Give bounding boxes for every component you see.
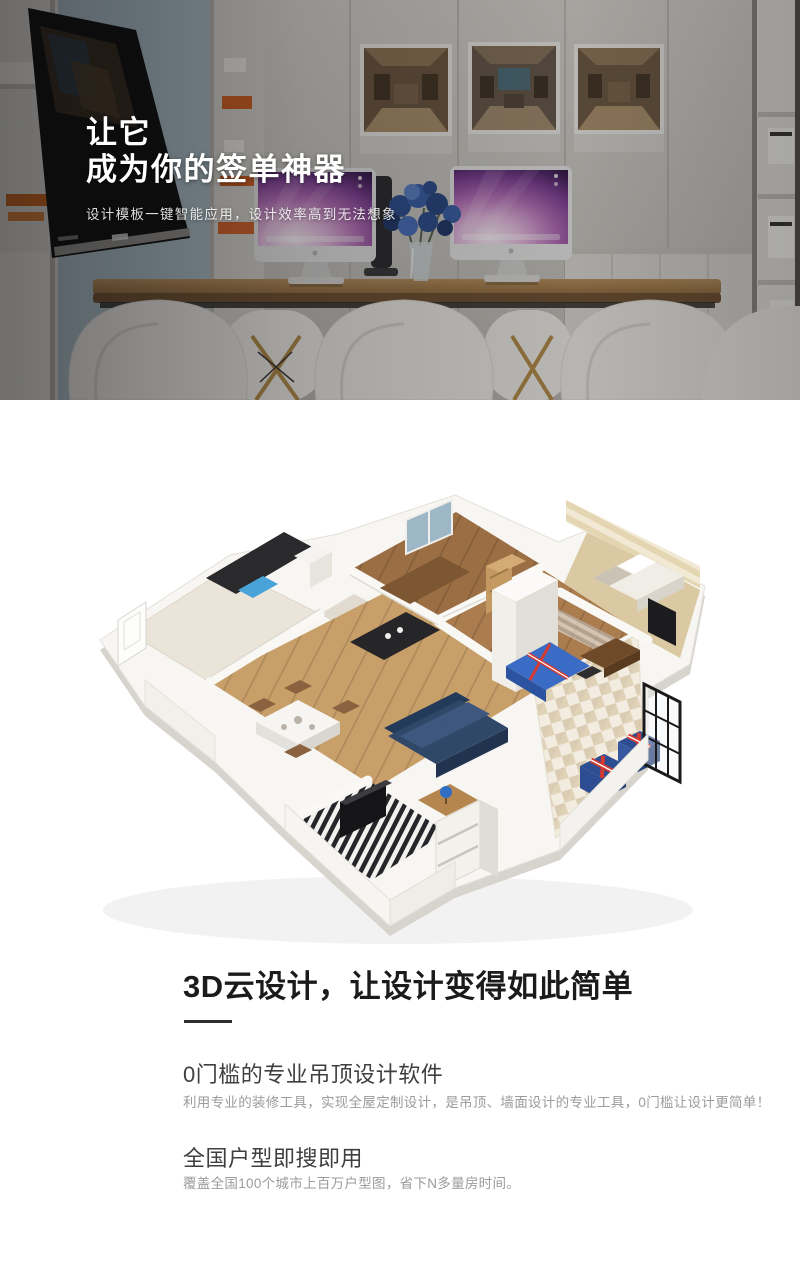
floorplan-illustration: [88, 470, 713, 950]
feature-title-ceiling-design: 0门槛的专业吊顶设计软件: [183, 1057, 443, 1089]
section-heading: 3D云设计，让设计变得如此简单: [183, 961, 633, 1006]
hero-text-block: 让它 成为你的签单神器 设计模板一键智能应用，设计效率高到无法想象: [86, 114, 397, 223]
feature-desc-house-search: 覆盖全国100个城市上百万户型图，省下N多量房时间。: [183, 1172, 520, 1192]
hero-banner: 让它 成为你的签单神器 设计模板一键智能应用，设计效率高到无法想象: [0, 0, 800, 400]
hero-title-line1: 让它: [86, 114, 397, 151]
hero-title-line2: 成为你的签单神器: [86, 151, 397, 188]
heading-divider: [184, 1020, 232, 1023]
hero-subtitle: 设计模板一键智能应用，设计效率高到无法想象: [86, 203, 397, 223]
feature-desc-ceiling-design: 利用专业的装修工具，实现全屋定制设计，是吊顶、墙面设计的专业工具，0门槛让设计更…: [183, 1091, 770, 1111]
floorplan-render: [88, 470, 713, 950]
landing-page: 让它 成为你的签单神器 设计模板一键智能应用，设计效率高到无法想象: [0, 0, 800, 1271]
feature-title-house-search: 全国户型即搜即用: [183, 1141, 363, 1173]
